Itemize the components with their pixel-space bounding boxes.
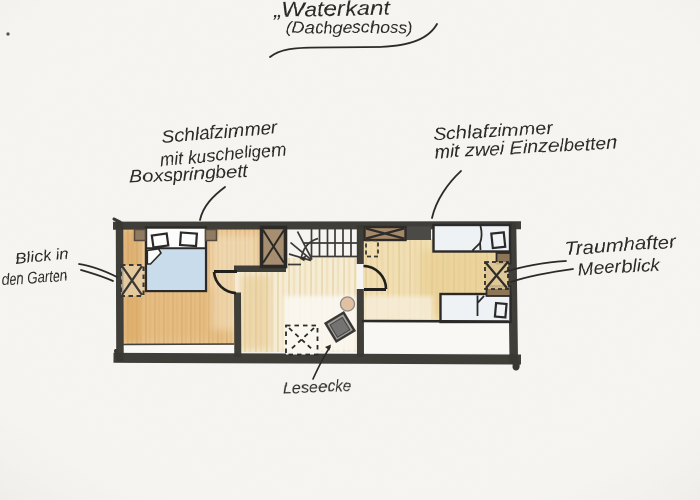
svg-text:Leseecke: Leseecke: [282, 376, 352, 397]
svg-text:(Dachgeschoss): (Dachgeschoss): [286, 18, 413, 37]
